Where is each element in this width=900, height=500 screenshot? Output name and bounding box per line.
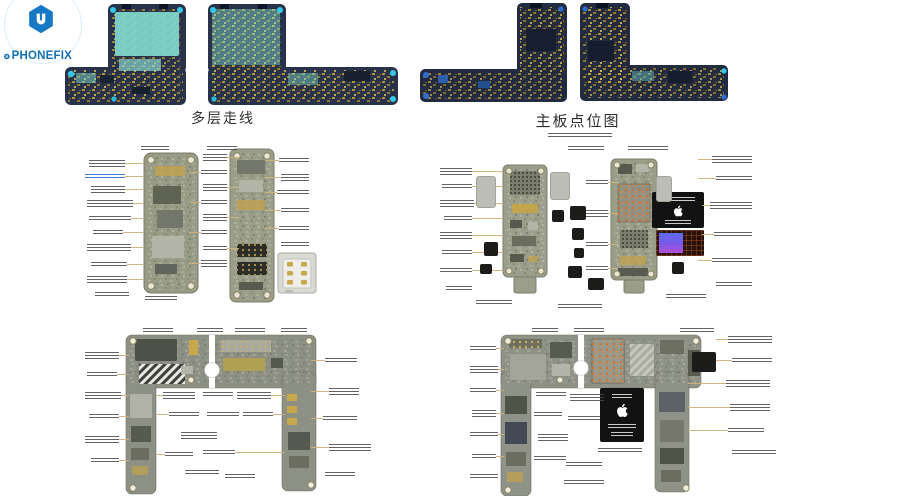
apple-logo-icon — [673, 205, 683, 217]
annotation-text — [666, 294, 706, 298]
leader-line — [125, 176, 143, 177]
sim-connector-diagram — [277, 250, 317, 296]
annotation-text — [710, 202, 752, 209]
chip-photo-gradient — [656, 230, 704, 256]
shield-block — [476, 176, 496, 208]
leader-line — [265, 192, 277, 193]
diagram-board-halves-back — [440, 146, 770, 312]
chip-photo-black — [692, 352, 716, 372]
gradient-die — [659, 233, 683, 253]
annotation-text — [329, 444, 371, 451]
annotation-text — [712, 156, 752, 163]
annotation-text — [536, 392, 566, 396]
annotation-text — [442, 250, 472, 254]
leader-line — [271, 395, 285, 396]
leader-line — [123, 232, 143, 233]
annotation-text — [201, 260, 227, 267]
leader-line — [716, 339, 728, 340]
annotation-text — [203, 392, 233, 396]
leader-line — [117, 374, 129, 375]
annotation-text — [570, 394, 604, 401]
leader-line — [189, 263, 201, 264]
annotation-text — [207, 412, 239, 416]
annotation-text — [470, 346, 496, 350]
leader-line — [311, 391, 329, 392]
leader-line — [702, 205, 710, 206]
annotation-text — [586, 242, 608, 246]
annotation-text — [628, 146, 668, 150]
annotation-text — [442, 184, 472, 188]
annotation-text — [472, 454, 496, 458]
leader-line — [688, 407, 730, 408]
diagram-unfolded-board-front — [85, 328, 395, 500]
annotation-text — [89, 216, 131, 220]
leader-line — [265, 160, 279, 161]
annotation-text — [197, 328, 223, 332]
leader-line — [698, 260, 712, 261]
annotation-text — [558, 304, 602, 308]
leader-line — [227, 248, 239, 249]
annotation-text — [87, 200, 133, 207]
annotation-text — [716, 176, 752, 180]
leader-line — [472, 171, 502, 172]
leader-line — [119, 355, 129, 356]
chip-label-text — [612, 394, 632, 398]
annotation-text — [91, 186, 125, 193]
annotation-text — [145, 296, 177, 300]
leader-line — [131, 247, 143, 248]
chip-label-text — [611, 432, 633, 436]
leader-line — [131, 218, 143, 219]
annotation-text — [87, 276, 127, 283]
chip-photo-black — [588, 278, 604, 290]
shield-block — [656, 176, 672, 202]
annotation-text — [470, 474, 498, 478]
chip-photo-black — [574, 248, 584, 258]
pcb-photo-multilayer — [62, 1, 402, 108]
leader-line — [157, 395, 163, 396]
annotation-text — [564, 480, 604, 484]
annotation-text — [201, 170, 227, 174]
annotation-text — [566, 462, 602, 466]
leader-line — [273, 414, 285, 415]
annotation-text — [243, 412, 273, 416]
apple-chip-photo — [600, 388, 644, 442]
annotation-text — [95, 292, 129, 296]
annotation-text — [680, 328, 714, 332]
leader-line — [498, 434, 504, 435]
leader-line — [496, 348, 504, 349]
leader-line — [265, 228, 279, 229]
board-half-right — [229, 148, 275, 304]
annotation-text — [568, 416, 600, 420]
leader-line — [127, 264, 143, 265]
leader-line — [608, 213, 618, 214]
leader-line — [688, 430, 728, 431]
annotation-text — [225, 474, 255, 478]
annotation-text — [598, 448, 642, 452]
diagram-board-halves-front — [85, 146, 405, 312]
apple-logo-icon — [616, 403, 628, 418]
shield-block — [550, 172, 570, 200]
leader-line — [608, 244, 618, 245]
leader-line — [698, 159, 712, 160]
annotation-text — [714, 232, 752, 236]
leader-line — [133, 203, 143, 204]
annotation-text — [85, 436, 119, 443]
annotation-text — [141, 146, 169, 150]
leader-line — [227, 187, 239, 188]
annotation-text — [85, 392, 121, 399]
annotation-text — [732, 450, 776, 454]
annotation-text — [548, 133, 612, 137]
annotation-text — [85, 352, 119, 359]
annotation-text — [712, 258, 752, 262]
annotation-text — [586, 266, 608, 270]
annotation-text — [281, 174, 309, 181]
annotation-text — [568, 146, 604, 150]
pcb-photo-point-map — [418, 1, 733, 106]
annotation-text — [201, 200, 227, 204]
annotation-text — [93, 230, 123, 234]
annotation-text — [203, 214, 227, 221]
annotation-text — [534, 412, 562, 416]
annotation-text — [85, 174, 125, 178]
annotation-text — [181, 432, 217, 439]
annotation-text — [163, 392, 195, 399]
annotation-text — [440, 168, 472, 175]
circle-x-icon — [4, 51, 10, 62]
annotation-text — [732, 358, 772, 362]
annotation-text — [203, 184, 227, 191]
leader-line — [119, 460, 129, 461]
leader-line — [125, 163, 143, 164]
leader-line — [189, 172, 201, 173]
annotation-text — [281, 242, 309, 246]
annotation-text — [185, 470, 219, 474]
leader-line — [311, 360, 325, 361]
leader-line — [311, 447, 329, 448]
chip-photo-black — [568, 266, 582, 278]
annotation-text — [235, 328, 265, 332]
annotation-text — [207, 146, 237, 150]
annotation-text — [87, 244, 131, 251]
hex-wrench-icon — [27, 5, 55, 33]
caption-point-map: 主板点位图 — [518, 110, 638, 131]
annotation-text — [87, 372, 117, 376]
leader-line — [127, 279, 143, 280]
annotation-text — [440, 232, 472, 239]
annotation-text — [325, 472, 355, 476]
chip-photo-black — [572, 228, 584, 240]
annotation-text — [169, 412, 199, 416]
annotation-text — [281, 208, 309, 212]
leader-line — [265, 210, 281, 211]
annotation-text — [91, 458, 119, 462]
annotation-text — [470, 388, 496, 392]
annotation-text — [532, 328, 558, 332]
annotation-text — [716, 282, 752, 286]
annotation-text — [237, 392, 271, 399]
leader-line — [157, 414, 169, 415]
board-half-left — [143, 152, 199, 294]
leader-line — [702, 234, 714, 235]
annotation-text — [534, 456, 566, 460]
leader-line — [119, 439, 129, 440]
leader-line — [608, 268, 618, 269]
annotation-text — [203, 154, 227, 161]
leader-line — [189, 202, 201, 203]
leader-line — [688, 383, 726, 384]
chip-photo-black — [570, 206, 586, 220]
chip-photo-black — [480, 264, 492, 274]
annotation-text — [279, 226, 309, 230]
annotation-text — [470, 366, 498, 373]
diagram-unfolded-board-back — [470, 328, 820, 500]
annotation-text — [440, 200, 474, 207]
annotation-text — [329, 388, 359, 395]
annotation-text — [440, 268, 472, 272]
chip-photo-black — [672, 262, 684, 274]
annotation-text — [281, 328, 307, 332]
annotation-text — [444, 216, 472, 220]
annotation-text — [574, 328, 604, 332]
annotation-text — [726, 380, 770, 387]
annotation-text — [446, 286, 472, 290]
annotation-text — [586, 180, 608, 184]
annotation-text — [277, 190, 309, 194]
annotation-text — [89, 414, 119, 418]
leader-line — [157, 454, 165, 455]
leader-line — [125, 189, 143, 190]
annotation-text — [203, 246, 227, 250]
annotation-text — [728, 428, 764, 432]
annotation-text — [323, 416, 357, 420]
caption-multilayer: 多层走线 — [173, 108, 273, 128]
leader-line — [496, 456, 504, 457]
leader-line — [608, 182, 618, 183]
leader-line — [472, 218, 502, 219]
leader-line — [311, 418, 323, 419]
leader-line — [227, 217, 239, 218]
leader-line — [496, 413, 504, 414]
annotation-text — [165, 452, 193, 456]
leader-line — [121, 395, 129, 396]
leader-line — [189, 232, 201, 233]
annotation-text — [470, 432, 498, 436]
chip-label-text — [608, 424, 636, 428]
board-half-right — [610, 158, 658, 294]
annotation-text — [203, 450, 235, 454]
annotation-text — [586, 210, 608, 217]
leader-line — [698, 178, 716, 179]
leader-line — [472, 235, 502, 236]
annotation-text — [538, 434, 568, 441]
annotation-text — [476, 300, 512, 304]
annotation-text — [730, 404, 770, 411]
annotation-text — [89, 160, 125, 167]
annotation-text — [201, 230, 227, 234]
annotation-text — [325, 358, 357, 362]
leader-line — [498, 369, 504, 370]
leader-line — [265, 177, 281, 178]
annotation-text — [279, 158, 309, 162]
board-half-left — [502, 164, 548, 294]
annotation-text — [143, 328, 173, 332]
chip-photo-black — [484, 242, 498, 256]
leader-line — [227, 157, 239, 158]
leader-line — [235, 452, 285, 453]
leader-line — [119, 416, 129, 417]
chip-label-text — [665, 220, 691, 224]
annotation-text — [728, 336, 772, 343]
annotation-text — [91, 262, 127, 266]
product-image: PHONEFIX 多层走线 — [0, 0, 900, 500]
annotation-text — [472, 410, 496, 417]
chip-photo-black — [552, 210, 564, 222]
leader-line — [496, 390, 504, 391]
